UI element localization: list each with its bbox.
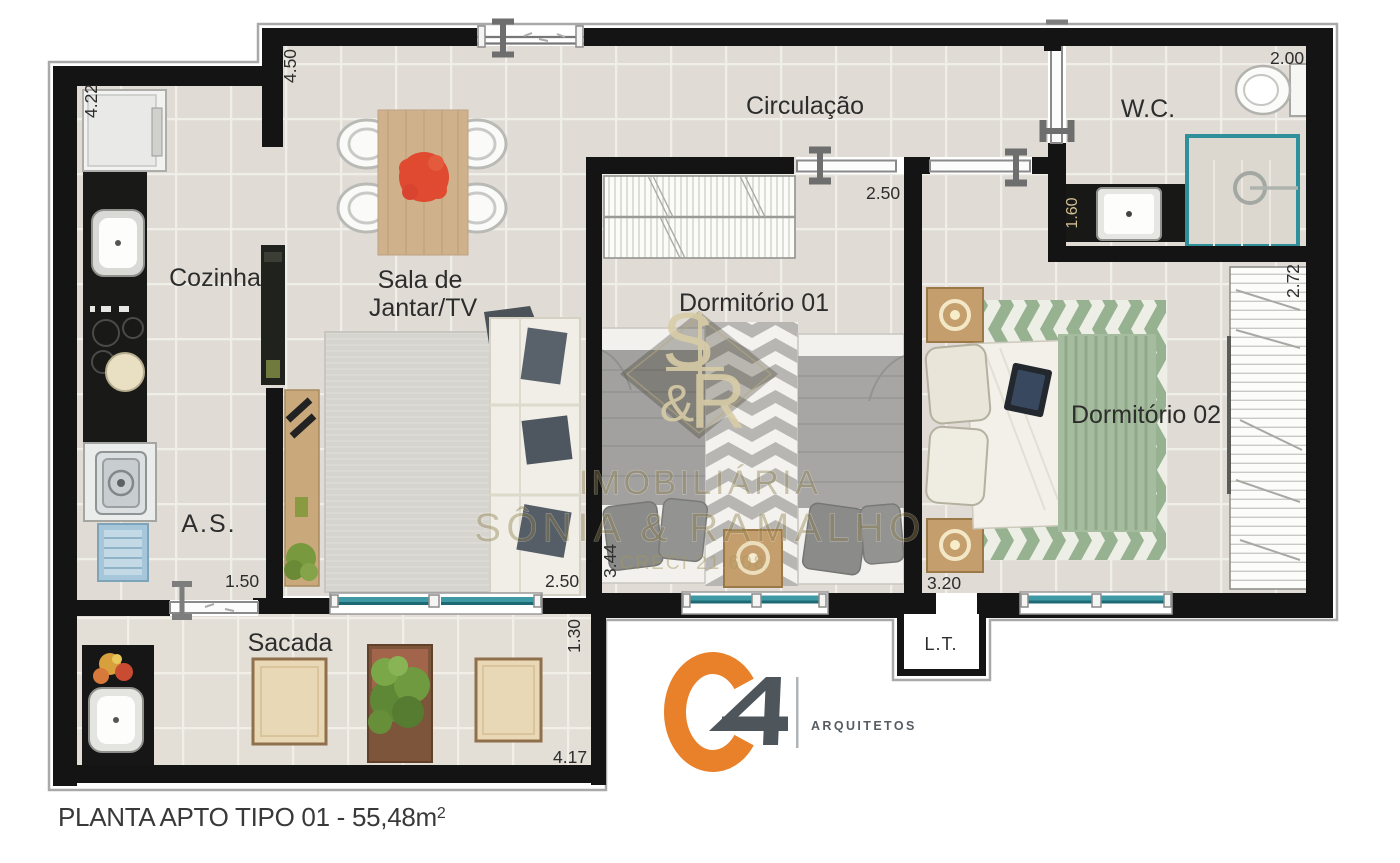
svg-text:2.00: 2.00 [1270, 48, 1304, 68]
svg-text:3.20: 3.20 [927, 573, 961, 593]
svg-text:Circulação: Circulação [746, 92, 864, 120]
svg-text:2.72: 2.72 [1283, 264, 1303, 298]
svg-text:1.60: 1.60 [1064, 197, 1081, 228]
svg-text:ARQUITETOS: ARQUITETOS [811, 719, 917, 733]
svg-text:Jantar/TV: Jantar/TV [369, 294, 478, 322]
svg-text:&: & [660, 375, 695, 433]
svg-text:4.22: 4.22 [81, 84, 101, 118]
svg-text:Sala de: Sala de [378, 266, 463, 294]
svg-text:Cozinha: Cozinha [169, 264, 261, 292]
svg-text:PLANTA APTO TIPO 01 - 55,48m2: PLANTA APTO TIPO 01 - 55,48m2 [58, 802, 446, 832]
svg-text:1.50: 1.50 [225, 571, 259, 591]
svg-text:CRECI 21.608: CRECI 21.608 [620, 553, 767, 574]
svg-text:2.50: 2.50 [545, 571, 579, 591]
svg-text:Sacada: Sacada [248, 629, 333, 657]
svg-text:W.C.: W.C. [1121, 95, 1175, 123]
svg-text:4.50: 4.50 [280, 49, 300, 83]
svg-text:2.50: 2.50 [866, 183, 900, 203]
svg-text:L.T.: L.T. [924, 634, 957, 654]
svg-text:1.30: 1.30 [564, 619, 584, 653]
svg-text:Dormitório 02: Dormitório 02 [1071, 401, 1221, 429]
svg-text:4.17: 4.17 [553, 747, 587, 767]
svg-text:A.S.: A.S. [181, 510, 236, 538]
svg-text:SÔNIA & RAMALHO: SÔNIA & RAMALHO [474, 505, 925, 550]
svg-text:IMOBILIÁRIA: IMOBILIÁRIA [579, 464, 822, 502]
